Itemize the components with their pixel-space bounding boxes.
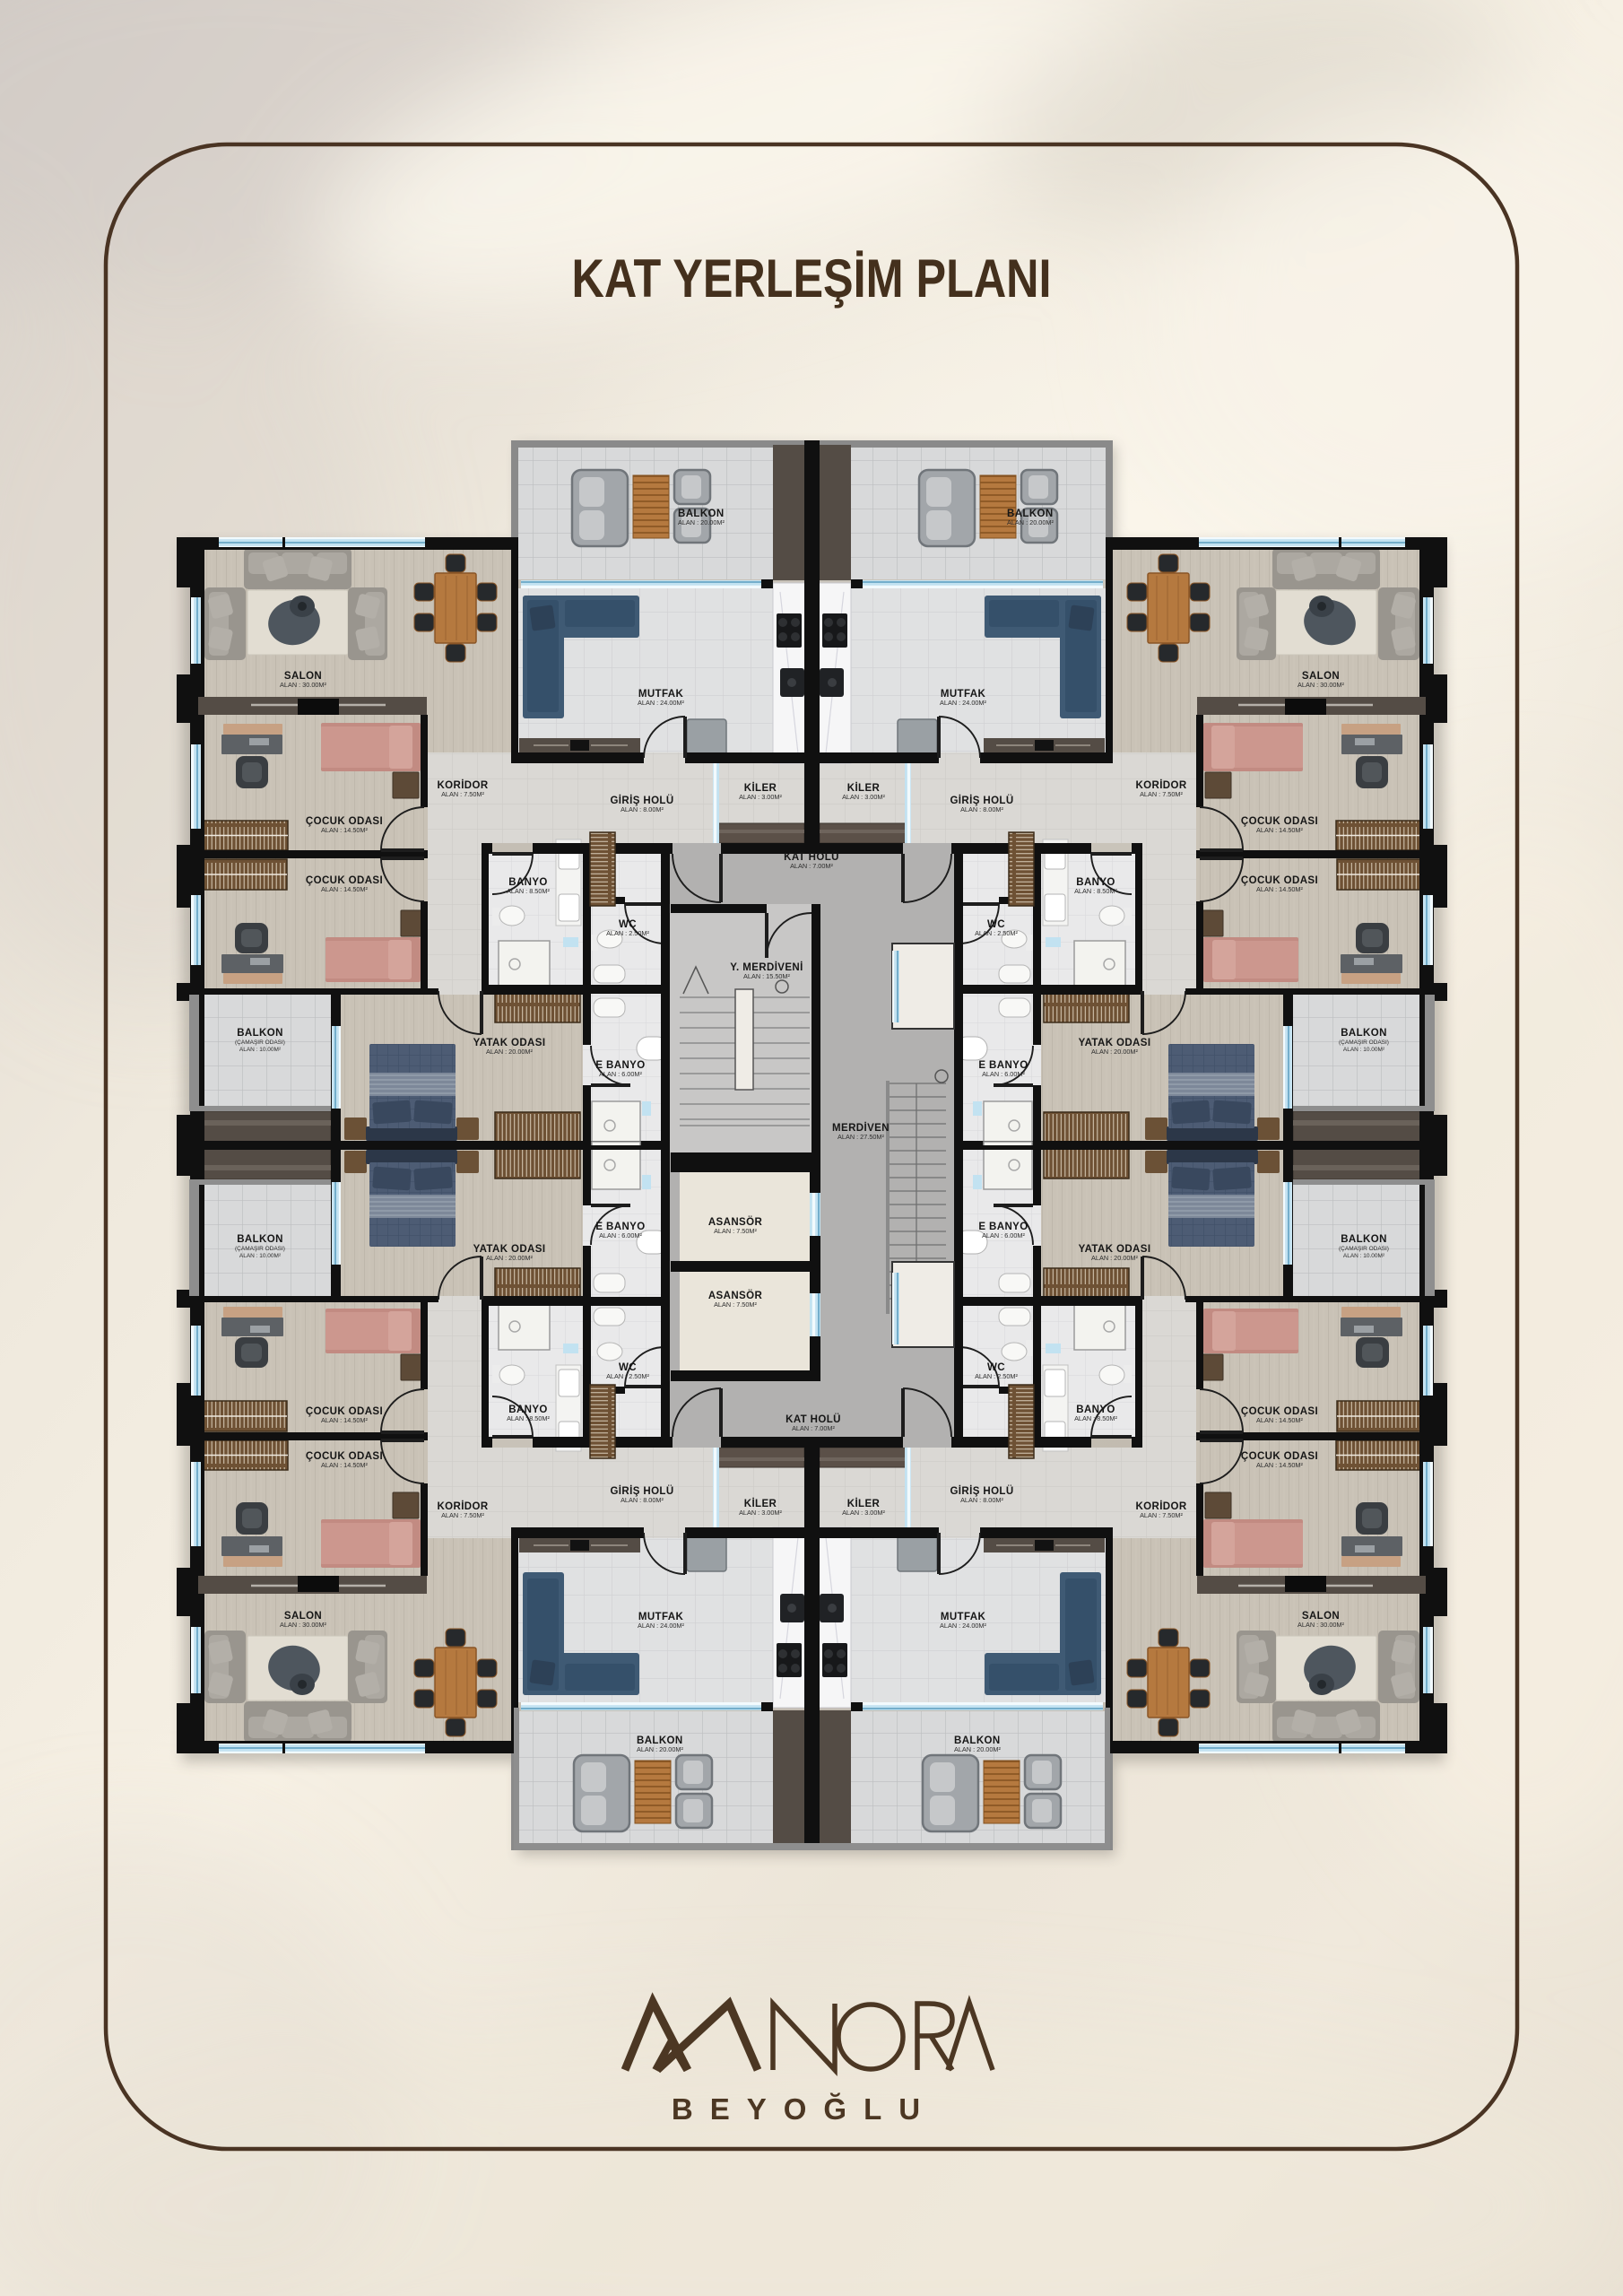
svg-text:ALAN : 20.00M²: ALAN : 20.00M² [486, 1254, 533, 1262]
svg-text:ALAN : 7.00M²: ALAN : 7.00M² [790, 862, 833, 870]
svg-text:ALAN : 14.50M²: ALAN : 14.50M² [321, 885, 368, 893]
svg-text:ALAN : 24.00M²: ALAN : 24.00M² [940, 1622, 986, 1630]
svg-text:ALAN : 2.50M²: ALAN : 2.50M² [975, 929, 1018, 937]
svg-text:ALAN : 14.50M²: ALAN : 14.50M² [1256, 885, 1303, 893]
svg-text:(ÇAMAŞIR ODASI): (ÇAMAŞIR ODASI) [235, 1039, 285, 1046]
svg-text:ALAN : 30.00M²: ALAN : 30.00M² [280, 681, 326, 689]
svg-text:ALAN : 20.00M²: ALAN : 20.00M² [678, 518, 725, 526]
svg-text:ALAN : 7.50M²: ALAN : 7.50M² [441, 790, 484, 798]
svg-text:ALAN : 14.50M²: ALAN : 14.50M² [1256, 826, 1303, 834]
svg-text:ALAN : 14.50M²: ALAN : 14.50M² [1256, 1416, 1303, 1424]
svg-text:ALAN : 27.50M²: ALAN : 27.50M² [838, 1133, 884, 1141]
svg-text:ALAN : 2.50M²: ALAN : 2.50M² [975, 1372, 1018, 1380]
svg-text:ALAN : 7.00M²: ALAN : 7.00M² [792, 1424, 835, 1432]
svg-text:BALKON: BALKON [237, 1028, 283, 1039]
svg-text:ALAN : 20.00M²: ALAN : 20.00M² [1091, 1048, 1138, 1056]
svg-text:ALAN : 10.00M²: ALAN : 10.00M² [1343, 1047, 1385, 1053]
svg-text:ALAN : 8.00M²: ALAN : 8.00M² [960, 805, 1003, 813]
svg-text:ALAN : 10.00M²: ALAN : 10.00M² [239, 1047, 282, 1053]
svg-text:ALAN : 8.50M²: ALAN : 8.50M² [1074, 1414, 1117, 1422]
svg-text:ALAN : 30.00M²: ALAN : 30.00M² [280, 1621, 326, 1629]
svg-text:(ÇAMAŞIR ODASI): (ÇAMAŞIR ODASI) [1339, 1246, 1389, 1252]
svg-text:ALAN : 30.00M²: ALAN : 30.00M² [1298, 681, 1344, 689]
svg-text:ALAN : 20.00M²: ALAN : 20.00M² [486, 1048, 533, 1056]
svg-text:ALAN : 8.00M²: ALAN : 8.00M² [621, 1496, 664, 1504]
svg-text:BEYOĞLU: BEYOĞLU [672, 2092, 937, 2126]
svg-text:KAT YERLEŞİM PLANI: KAT YERLEŞİM PLANI [572, 248, 1052, 309]
svg-text:ALAN : 7.50M²: ALAN : 7.50M² [714, 1300, 757, 1309]
svg-text:ALAN : 24.00M²: ALAN : 24.00M² [940, 699, 986, 707]
svg-text:ALAN : 30.00M²: ALAN : 30.00M² [1298, 1621, 1344, 1629]
svg-text:ALAN : 24.00M²: ALAN : 24.00M² [638, 1622, 684, 1630]
svg-text:ALAN : 20.00M²: ALAN : 20.00M² [954, 1745, 1001, 1753]
svg-text:ALAN : 10.00M²: ALAN : 10.00M² [239, 1253, 282, 1259]
svg-text:ALAN : 14.50M²: ALAN : 14.50M² [1256, 1461, 1303, 1469]
svg-text:ALAN : 8.50M²: ALAN : 8.50M² [507, 887, 550, 895]
svg-text:ALAN : 10.00M²: ALAN : 10.00M² [1343, 1253, 1385, 1259]
svg-text:ALAN : 20.00M²: ALAN : 20.00M² [637, 1745, 683, 1753]
svg-text:ALAN : 7.50M²: ALAN : 7.50M² [1140, 790, 1183, 798]
svg-text:ALAN : 14.50M²: ALAN : 14.50M² [321, 1416, 368, 1424]
svg-text:ALAN : 7.50M²: ALAN : 7.50M² [1140, 1511, 1183, 1519]
svg-text:ALAN : 2.50M²: ALAN : 2.50M² [606, 1372, 649, 1380]
svg-text:ALAN : 15.50M²: ALAN : 15.50M² [743, 972, 790, 980]
svg-text:ALAN : 8.00M²: ALAN : 8.00M² [621, 805, 664, 813]
svg-text:ALAN : 7.50M²: ALAN : 7.50M² [441, 1511, 484, 1519]
svg-text:ALAN : 8.50M²: ALAN : 8.50M² [1074, 887, 1117, 895]
svg-text:ALAN : 6.00M²: ALAN : 6.00M² [599, 1070, 642, 1078]
svg-text:ALAN : 3.00M²: ALAN : 3.00M² [842, 1509, 885, 1517]
svg-text:ALAN : 3.00M²: ALAN : 3.00M² [739, 793, 782, 801]
svg-text:ALAN : 3.00M²: ALAN : 3.00M² [842, 793, 885, 801]
svg-text:ALAN : 6.00M²: ALAN : 6.00M² [982, 1231, 1025, 1239]
svg-text:ALAN : 6.00M²: ALAN : 6.00M² [599, 1231, 642, 1239]
svg-text:ALAN : 6.00M²: ALAN : 6.00M² [982, 1070, 1025, 1078]
svg-text:ALAN : 14.50M²: ALAN : 14.50M² [321, 1461, 368, 1469]
svg-text:ALAN : 8.00M²: ALAN : 8.00M² [960, 1496, 1003, 1504]
svg-text:(ÇAMAŞIR ODASI): (ÇAMAŞIR ODASI) [235, 1246, 285, 1252]
svg-text:ALAN : 14.50M²: ALAN : 14.50M² [321, 826, 368, 834]
svg-text:ALAN : 2.50M²: ALAN : 2.50M² [606, 929, 649, 937]
svg-text:(ÇAMAŞIR ODASI): (ÇAMAŞIR ODASI) [1339, 1039, 1389, 1046]
svg-text:ALAN : 3.00M²: ALAN : 3.00M² [739, 1509, 782, 1517]
svg-text:ALAN : 8.50M²: ALAN : 8.50M² [507, 1414, 550, 1422]
svg-text:ALAN : 7.50M²: ALAN : 7.50M² [714, 1227, 757, 1235]
svg-text:BALKON: BALKON [237, 1234, 283, 1245]
svg-text:ALAN : 24.00M²: ALAN : 24.00M² [638, 699, 684, 707]
svg-text:BALKON: BALKON [1341, 1028, 1387, 1039]
svg-text:ALAN : 20.00M²: ALAN : 20.00M² [1091, 1254, 1138, 1262]
svg-text:BALKON: BALKON [1341, 1234, 1387, 1245]
svg-text:ALAN : 20.00M²: ALAN : 20.00M² [1007, 518, 1054, 526]
